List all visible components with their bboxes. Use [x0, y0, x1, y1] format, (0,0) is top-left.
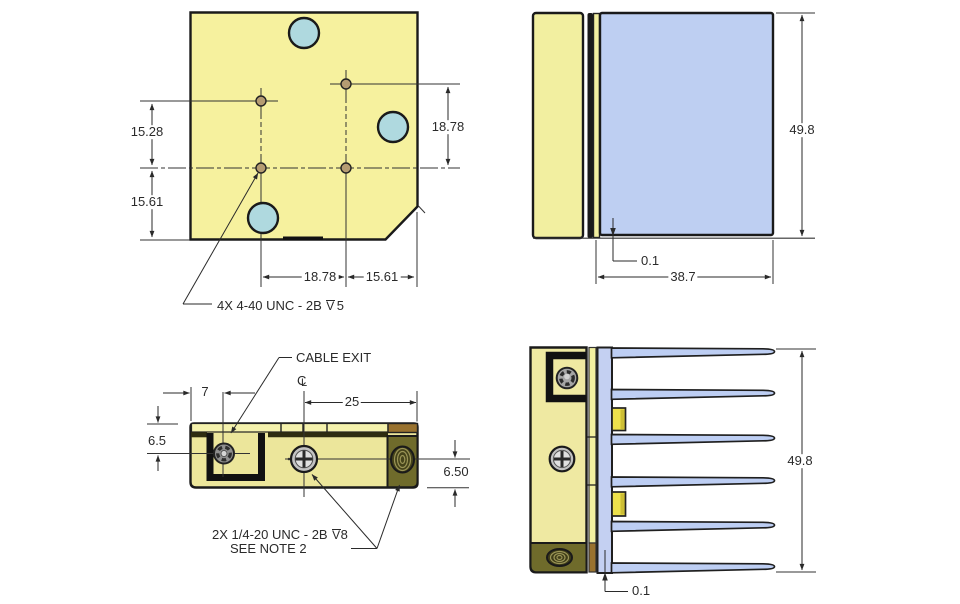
thread-note-text: 2X 1/4-20 UNC - 2B [212, 527, 328, 542]
dim-horizontal-right: 15.61 [364, 270, 401, 284]
pcb-strip-column [589, 348, 596, 544]
depth-symbol-icon: V [326, 300, 335, 312]
dim-side-step: 0.1 [641, 254, 659, 268]
cable-exit-label: CABLE EXIT [296, 351, 371, 365]
thread-note-line1: 2X 1/4-20 UNC - 2BV8 [212, 528, 348, 542]
chamfer-tick [419, 206, 426, 213]
brown-segment [388, 424, 418, 433]
side-view [533, 13, 815, 284]
engineering-drawing-canvas: 15.28 15.61 18.78 18.78 15.61 4X 4-40 UN… [0, 0, 960, 604]
brown-strip-column [589, 543, 596, 572]
thread-depth-value: 8 [341, 527, 348, 542]
fins-view-dimension-lines [605, 351, 802, 592]
component-tabs [612, 408, 626, 516]
dim-vertical-lower: 15.61 [129, 195, 166, 209]
clearance-hole [248, 203, 278, 233]
dim-offset: 7 [199, 385, 210, 399]
dim-side-height: 49.8 [787, 123, 816, 137]
fin [612, 563, 775, 573]
gap-strip [588, 13, 594, 238]
see-note-label: SEE NOTE 2 [212, 542, 348, 556]
depth-symbol-icon: V [332, 529, 341, 541]
thread-note-text: 4X 4-40 UNC - 2B [217, 298, 322, 313]
dim-side-width: 38.7 [668, 270, 697, 284]
fin [612, 477, 775, 487]
drawing-geometry [0, 0, 960, 604]
thread-depth-value: 5 [337, 298, 344, 313]
dim-horizontal-left: 18.78 [302, 270, 339, 284]
bottom-tapped-hole [547, 549, 572, 566]
dim-fins-height: 49.8 [785, 454, 814, 468]
heatsink-spine [598, 348, 613, 574]
dim-vertical-upper: 15.28 [129, 125, 166, 139]
middle-screw-head [550, 447, 575, 472]
clearance-hole [378, 112, 408, 142]
pcb-strip [594, 14, 600, 238]
dim-left-height: 6.5 [146, 434, 168, 448]
finned-side-view [531, 348, 817, 592]
top-edge-strip [192, 424, 389, 433]
screw-head [291, 446, 317, 472]
heatsink-fins [612, 348, 775, 573]
thread-note-top: 4X 4-40 UNC - 2BV5 [217, 299, 344, 313]
fin [612, 348, 775, 358]
top-screw-head [557, 368, 578, 389]
fin [612, 435, 775, 445]
clearance-hole [289, 18, 319, 48]
thread-note-front: 2X 1/4-20 UNC - 2BV8 SEE NOTE 2 [212, 528, 348, 555]
dim-fins-step: 0.1 [632, 584, 650, 598]
dim-vertical-right: 18.78 [430, 120, 467, 134]
fin [612, 522, 775, 532]
dim-right-height: 6.50 [441, 465, 470, 479]
housing-strip [533, 13, 583, 238]
fin [612, 390, 775, 400]
cable-exit-hole [214, 444, 234, 464]
centerline-symbol: C L [297, 373, 311, 391]
heatsink-base-block [600, 13, 773, 235]
side-tapped-hole [391, 447, 414, 473]
top-view [140, 13, 460, 305]
dim-half-width: 25 [343, 395, 361, 409]
centerline-symbol-l: L [301, 377, 307, 389]
